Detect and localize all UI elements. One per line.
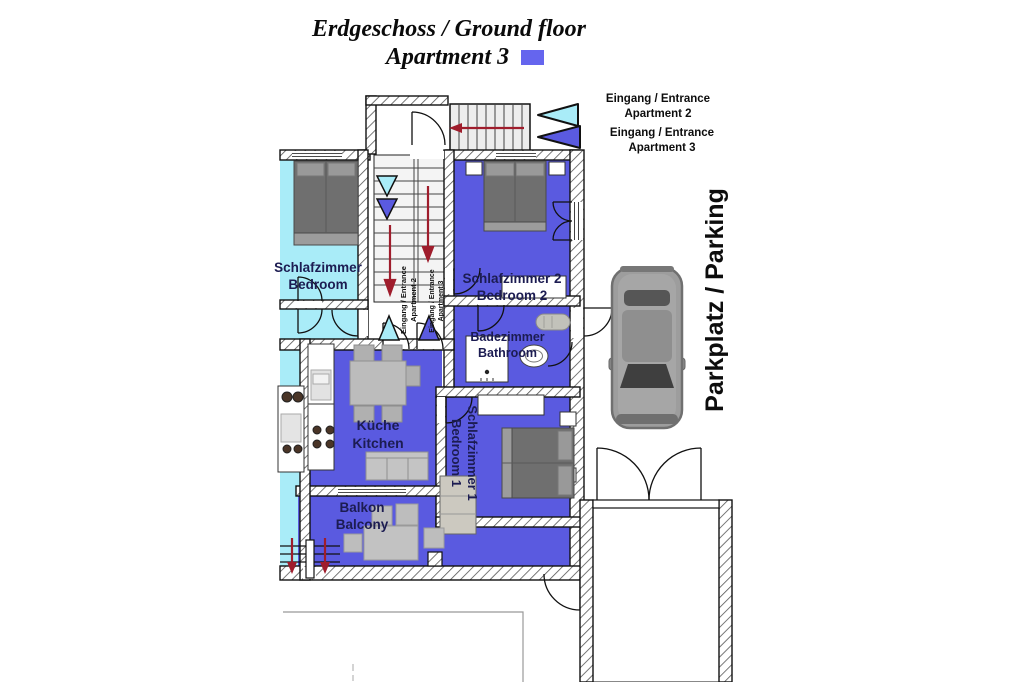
bed-apartment2 xyxy=(294,161,358,245)
hall-entrance-apartment3-label: Eingang / Entrance Apartment 3 xyxy=(428,261,448,341)
sofa xyxy=(366,452,428,480)
garage xyxy=(580,448,732,682)
page-subtitle: Apartment 3 xyxy=(300,44,630,71)
subtitle-text: Apartment 3 xyxy=(386,44,509,71)
page-title: Erdgeschoss / Ground floor xyxy=(284,16,614,43)
garage-doors xyxy=(597,448,701,500)
bathroom-label: Badezimmer Bathroom xyxy=(450,329,565,361)
floor-plan-page: Erdgeschoss / Ground floor Apartment 3 E… xyxy=(0,0,1024,682)
kitchen-label: Küche Kitchen xyxy=(323,416,433,452)
bedroom1-label: Schlafzimmer 1 Bedroom 1 xyxy=(448,394,480,512)
closet-bedroom1 xyxy=(478,395,544,415)
bedroom2-label: Schlafzimmer 2 Bedroom 2 xyxy=(452,270,572,304)
entrance-apartment3-label: Eingang / Entrance Apartment 3 xyxy=(596,126,728,155)
parking-label: Parkplatz / Parking xyxy=(700,165,736,435)
entrance-apartment2-label: Eingang / Entrance Apartment 2 xyxy=(592,92,724,121)
balcony-label: Balkon Balcony xyxy=(312,499,412,533)
entrance-apartment3-icon xyxy=(538,126,580,148)
entrance-apartment2-icon xyxy=(538,104,578,126)
exterior-entrance-stairs xyxy=(449,104,530,153)
terrace-outline xyxy=(283,612,523,682)
entrance-legend xyxy=(538,104,580,148)
hall-entrance-apartment2-label: Eingang / Entrance Apartment 2 xyxy=(399,260,421,340)
car-icon xyxy=(609,266,685,428)
bedroom-apt2-label: Schlafzimmer Bedroom xyxy=(272,259,364,293)
kitchen-units-apartment2 xyxy=(278,386,304,472)
boiler xyxy=(536,314,570,330)
entry-hall xyxy=(374,104,446,156)
apartment3-color-swatch xyxy=(521,50,544,65)
